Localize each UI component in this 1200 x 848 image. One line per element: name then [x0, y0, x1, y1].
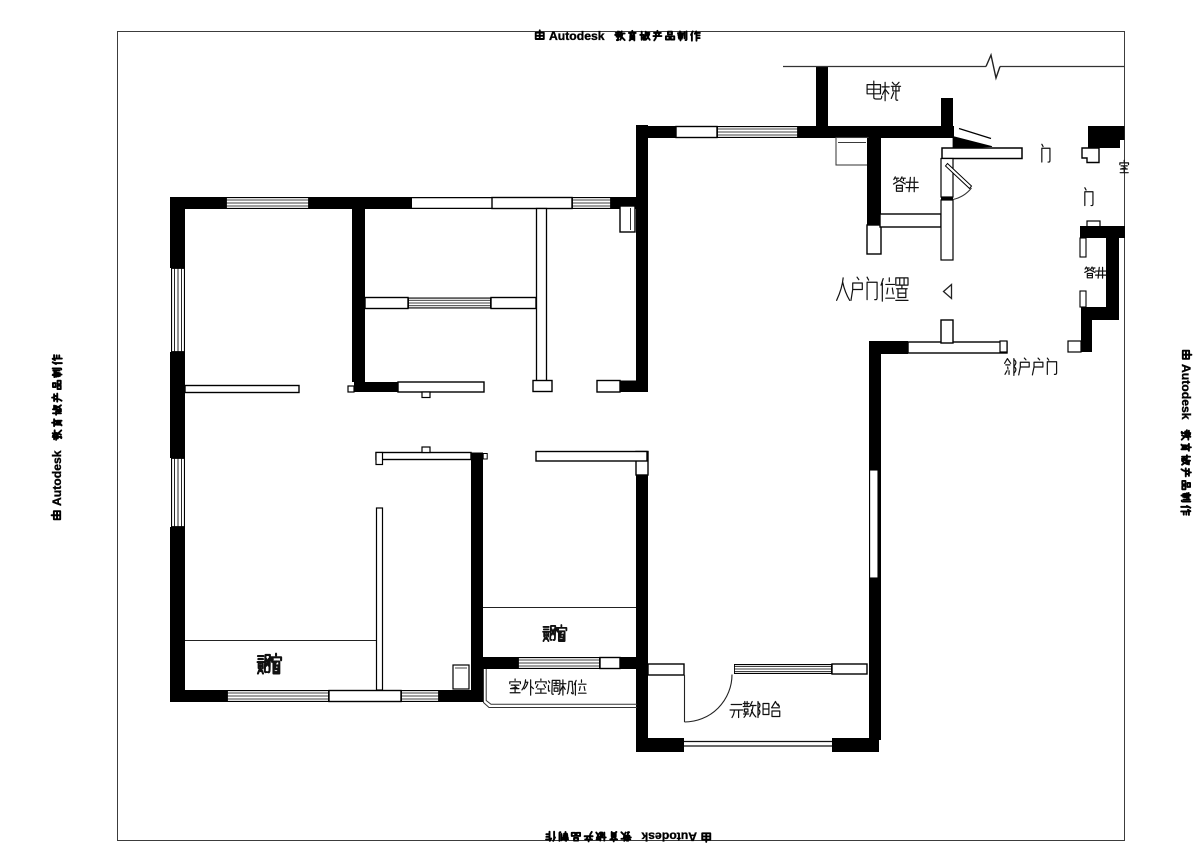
- svg-text:Autodesk: Autodesk: [549, 29, 605, 43]
- svg-text:Autodesk: Autodesk: [641, 830, 697, 844]
- svg-text:Autodesk: Autodesk: [1179, 364, 1193, 420]
- svg-text:Autodesk: Autodesk: [50, 450, 64, 506]
